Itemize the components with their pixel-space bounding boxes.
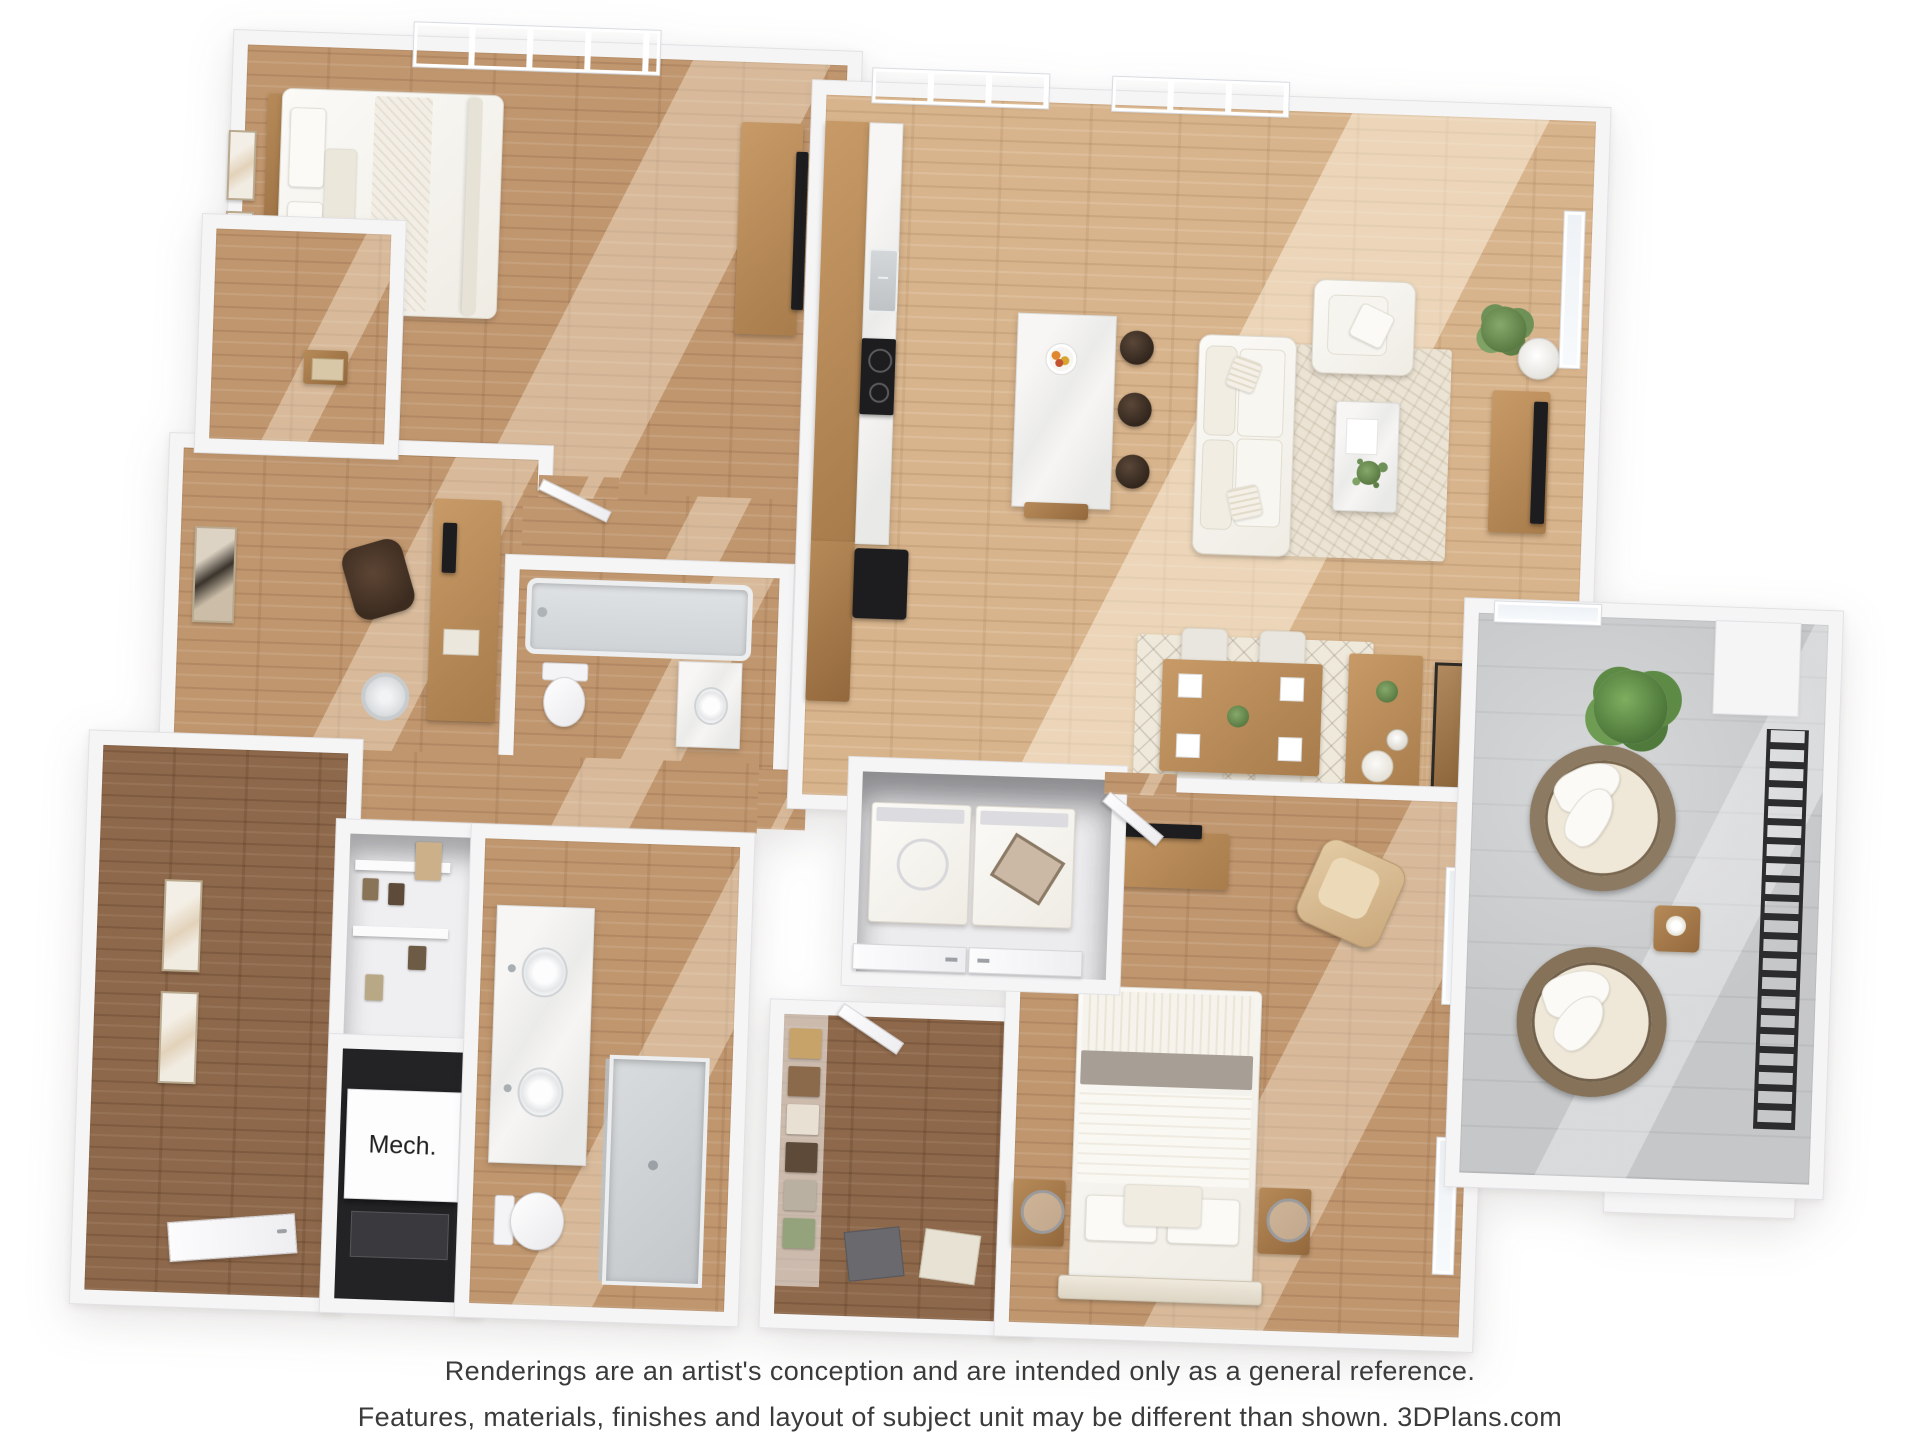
place-setting bbox=[1280, 677, 1305, 702]
sink bbox=[693, 686, 728, 725]
storage-bin bbox=[919, 1228, 981, 1285]
bowl bbox=[1361, 750, 1394, 783]
toilet bbox=[509, 1191, 565, 1251]
dryer-controls bbox=[980, 811, 1068, 828]
desk-papers bbox=[443, 629, 480, 656]
hanging-clothes bbox=[785, 1142, 818, 1173]
vase bbox=[1386, 729, 1409, 752]
double-vanity bbox=[488, 905, 595, 1166]
washer bbox=[868, 802, 972, 925]
entry-door bbox=[167, 1213, 297, 1262]
sideboard bbox=[1344, 653, 1423, 803]
sofa-back-cushion bbox=[1200, 439, 1235, 530]
door-handle bbox=[977, 959, 989, 963]
floor-lamp bbox=[1517, 337, 1560, 380]
wall-art bbox=[192, 526, 237, 623]
folded-duvet bbox=[1081, 990, 1255, 1056]
bathtub bbox=[525, 578, 754, 662]
bathroom-2 bbox=[455, 824, 755, 1327]
hanging-clothes bbox=[782, 1218, 815, 1249]
closet-door-leaf bbox=[837, 1003, 905, 1055]
office bbox=[159, 433, 553, 774]
floor-plan: Mech. bbox=[41, 10, 1840, 1346]
tub-faucet bbox=[537, 607, 547, 617]
laundry-basket bbox=[990, 833, 1066, 906]
laundry-door bbox=[968, 947, 1083, 977]
disclaimer-line-2: Features, materials, finishes and layout… bbox=[0, 1394, 1920, 1440]
pillow bbox=[288, 107, 327, 188]
duvet bbox=[1077, 1090, 1252, 1188]
wall-art bbox=[158, 991, 199, 1084]
faucet bbox=[508, 964, 516, 972]
shoes bbox=[365, 974, 384, 1001]
accent-chair bbox=[1292, 834, 1411, 953]
faucet bbox=[503, 1084, 511, 1092]
burner bbox=[868, 348, 893, 373]
wicker-chair bbox=[1527, 743, 1678, 894]
door-handle bbox=[945, 957, 957, 961]
wall-art bbox=[162, 879, 203, 972]
mech-label: Mech. bbox=[368, 1130, 437, 1161]
door-handle bbox=[277, 1229, 287, 1234]
hanging-clothes bbox=[784, 1180, 817, 1211]
kitchen-pantry bbox=[805, 540, 855, 701]
duvet-fold bbox=[462, 97, 484, 315]
office-chair bbox=[338, 535, 418, 623]
mech-appliance bbox=[350, 1211, 450, 1260]
dining-table bbox=[1159, 659, 1323, 777]
bedroom1-door-opening bbox=[1104, 772, 1177, 796]
storage-bin bbox=[844, 1226, 905, 1282]
living-window bbox=[1112, 77, 1289, 117]
balcony-door bbox=[1495, 601, 1602, 625]
hanging-clothes bbox=[786, 1104, 819, 1135]
vase-greenery bbox=[1376, 680, 1399, 703]
desk bbox=[426, 498, 502, 722]
flower-vase bbox=[1666, 916, 1687, 937]
sink bbox=[517, 1067, 565, 1119]
bed bbox=[1068, 985, 1262, 1285]
patio-side-table bbox=[1653, 905, 1701, 953]
closet-shelf bbox=[353, 926, 448, 939]
refrigerator bbox=[852, 548, 908, 620]
coffee-table bbox=[1332, 401, 1400, 513]
shoes bbox=[408, 946, 427, 971]
throw-pillow bbox=[1226, 484, 1264, 522]
cooktop bbox=[859, 338, 896, 415]
sink-divider bbox=[878, 277, 888, 279]
sofa bbox=[1192, 334, 1298, 557]
place-setting bbox=[1278, 737, 1303, 762]
bar-stool bbox=[1119, 330, 1154, 365]
armchair bbox=[1311, 279, 1416, 377]
fruit bbox=[1055, 359, 1063, 367]
living-window bbox=[872, 68, 1049, 108]
hanging-clothes bbox=[789, 1028, 822, 1059]
bedroom2-window bbox=[413, 22, 660, 75]
desk-monitor bbox=[442, 523, 458, 573]
pillow bbox=[1123, 1184, 1202, 1229]
island-base bbox=[1024, 502, 1089, 520]
fruit-bowl bbox=[1045, 343, 1078, 376]
bed-throw-gray bbox=[1080, 1050, 1253, 1090]
potted-plant-icon bbox=[1356, 460, 1381, 485]
disclaimer-line-1: Renderings are an artist's conception an… bbox=[0, 1348, 1920, 1394]
kitchen-island bbox=[1011, 313, 1117, 510]
centerpiece bbox=[1227, 705, 1250, 728]
wicker-chair bbox=[1514, 944, 1669, 1099]
chair-cushion bbox=[1315, 854, 1384, 923]
place-setting bbox=[1176, 733, 1201, 758]
shower bbox=[602, 1055, 710, 1288]
entry-hall bbox=[70, 730, 363, 1312]
hanging-clothes bbox=[788, 1066, 821, 1097]
kitchen-sink bbox=[867, 248, 899, 313]
palm-plant-icon bbox=[1592, 669, 1669, 746]
laundry-door bbox=[852, 943, 967, 973]
burner bbox=[869, 382, 890, 403]
coffee-table-book bbox=[1345, 418, 1378, 455]
shower-drain bbox=[648, 1160, 658, 1170]
washer-controls bbox=[876, 807, 964, 824]
vanity bbox=[676, 661, 743, 749]
bag bbox=[415, 842, 442, 881]
storage-closet bbox=[195, 214, 406, 459]
dryer bbox=[972, 805, 1076, 928]
shoes bbox=[362, 878, 379, 901]
toilet bbox=[542, 676, 586, 727]
wall-art bbox=[226, 130, 256, 201]
floor-plan-page: Mech. bbox=[0, 0, 1920, 1440]
sink bbox=[521, 947, 569, 999]
balcony-wall-stub bbox=[1713, 621, 1800, 716]
place-setting bbox=[1178, 673, 1203, 698]
bar-stool bbox=[1115, 454, 1150, 489]
shoes bbox=[388, 883, 405, 906]
storage-box bbox=[311, 358, 344, 381]
bar-stool bbox=[1117, 392, 1152, 427]
washer-lid bbox=[896, 838, 950, 892]
floor-fan bbox=[360, 672, 410, 722]
shower-glass bbox=[598, 1059, 610, 1281]
